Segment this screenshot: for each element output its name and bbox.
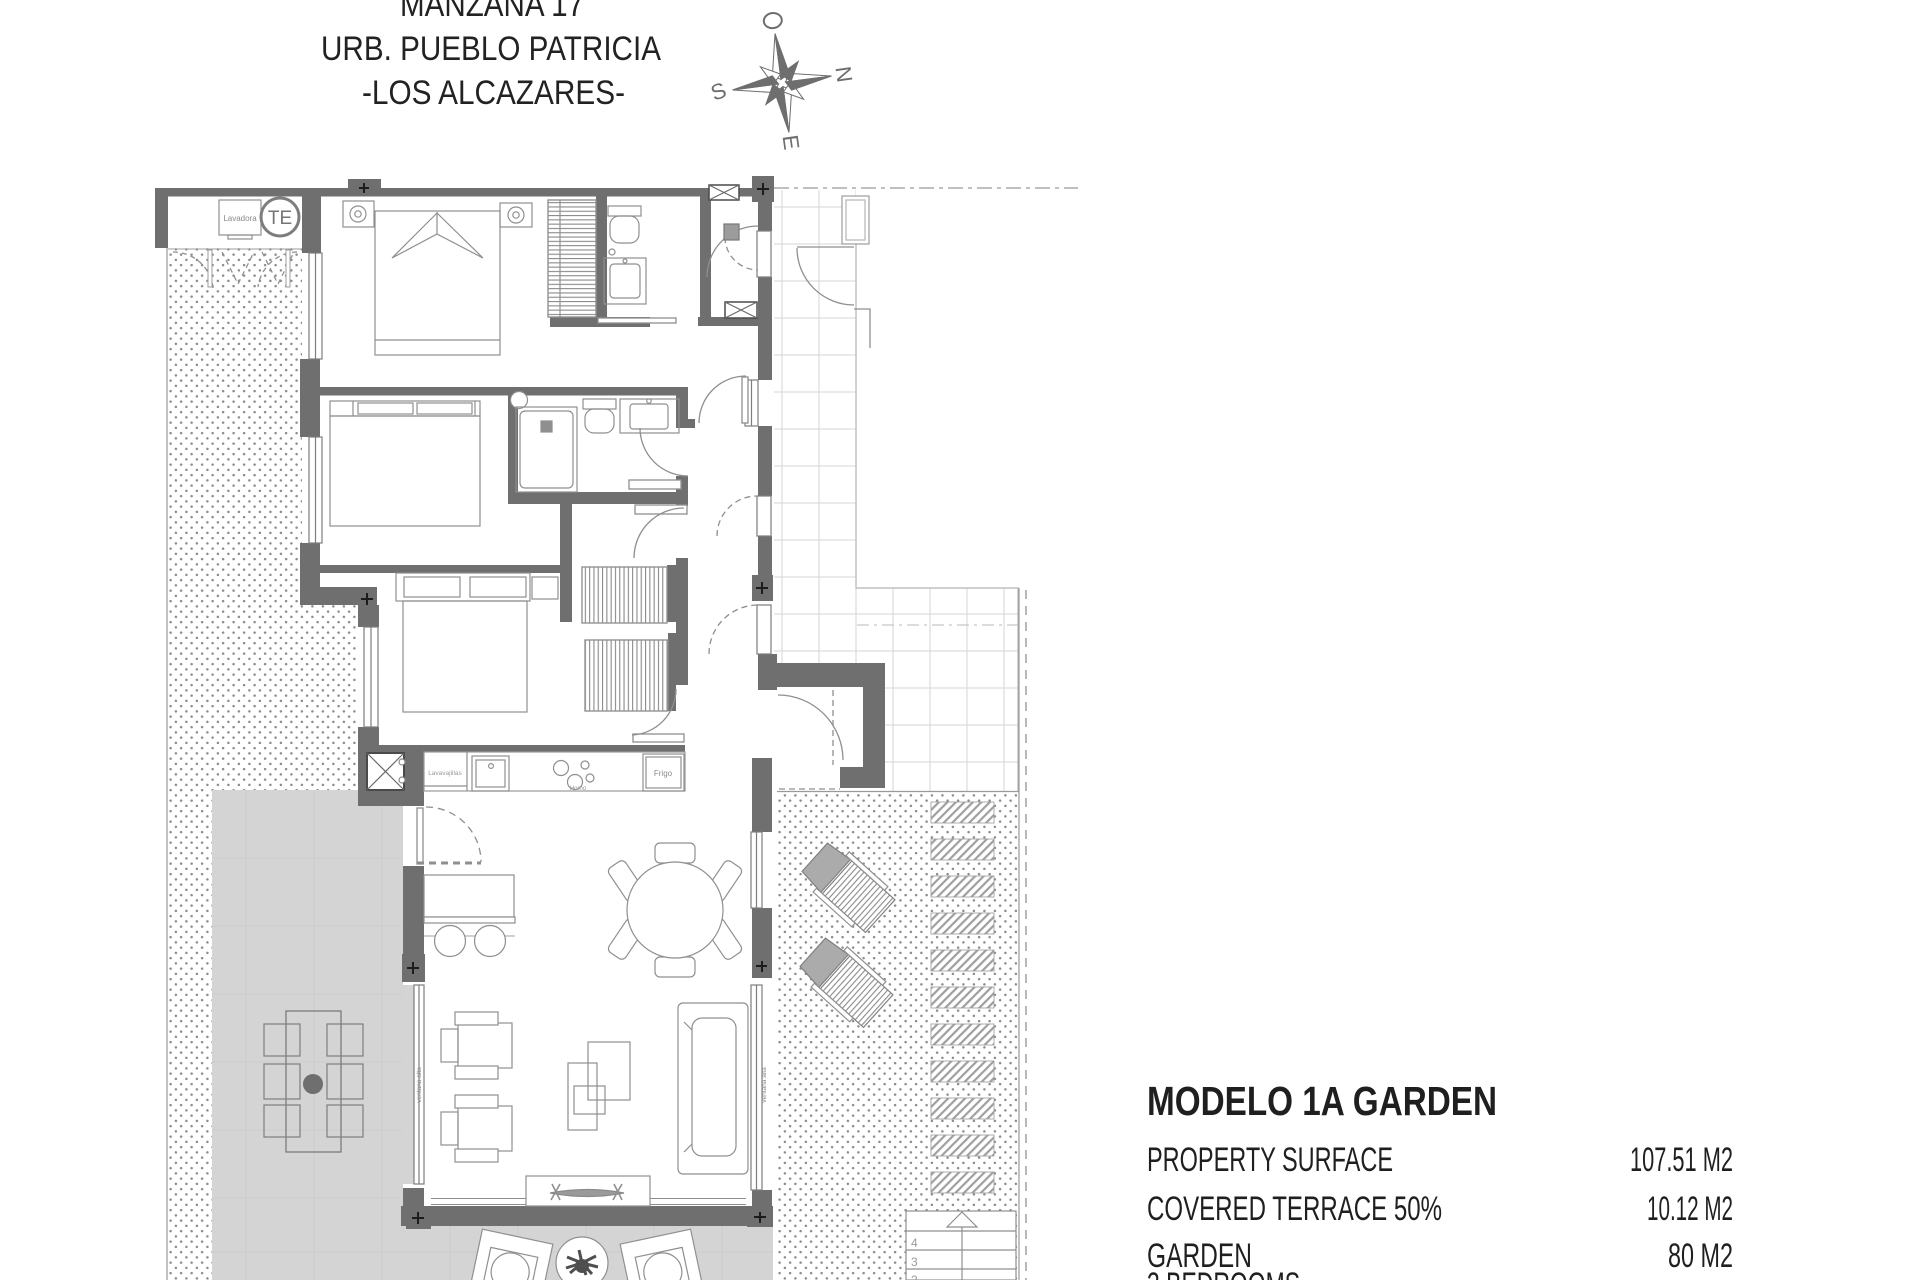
svg-text:ventana alta: ventana alta	[761, 1067, 768, 1103]
svg-text:TE: TE	[268, 208, 292, 229]
svg-text:PROPERTY SURFACE: PROPERTY SURFACE	[1147, 1141, 1393, 1179]
svg-text:COVERED TERRACE 50%: COVERED TERRACE 50%	[1147, 1190, 1442, 1228]
svg-text:2: 2	[911, 1273, 918, 1280]
svg-text:4: 4	[911, 1236, 918, 1250]
svg-text:Lavavajillas: Lavavajillas	[428, 770, 462, 777]
svg-text:MODELO 1A GARDEN: MODELO 1A GARDEN	[1147, 1078, 1497, 1124]
svg-text:3: 3	[911, 1255, 918, 1269]
svg-text:MANZANA 17: MANZANA 17	[400, 0, 584, 24]
svg-text:107.51 M2: 107.51 M2	[1630, 1141, 1733, 1179]
svg-text:-LOS ALCAZARES-: -LOS ALCAZARES-	[362, 74, 625, 112]
svg-text:Frigo: Frigo	[654, 769, 673, 778]
svg-text:10.12 M2: 10.12 M2	[1647, 1190, 1733, 1228]
svg-text:80 M2: 80 M2	[1668, 1237, 1733, 1275]
svg-text:URB. PUEBLO PATRICIA: URB. PUEBLO PATRICIA	[321, 30, 661, 68]
svg-text:Lavadora: Lavadora	[223, 214, 257, 223]
svg-text:3 BEDROOMS: 3 BEDROOMS	[1147, 1266, 1300, 1280]
svg-text:Horno: Horno	[570, 786, 587, 792]
svg-text:ventana alta: ventana alta	[416, 1067, 423, 1103]
